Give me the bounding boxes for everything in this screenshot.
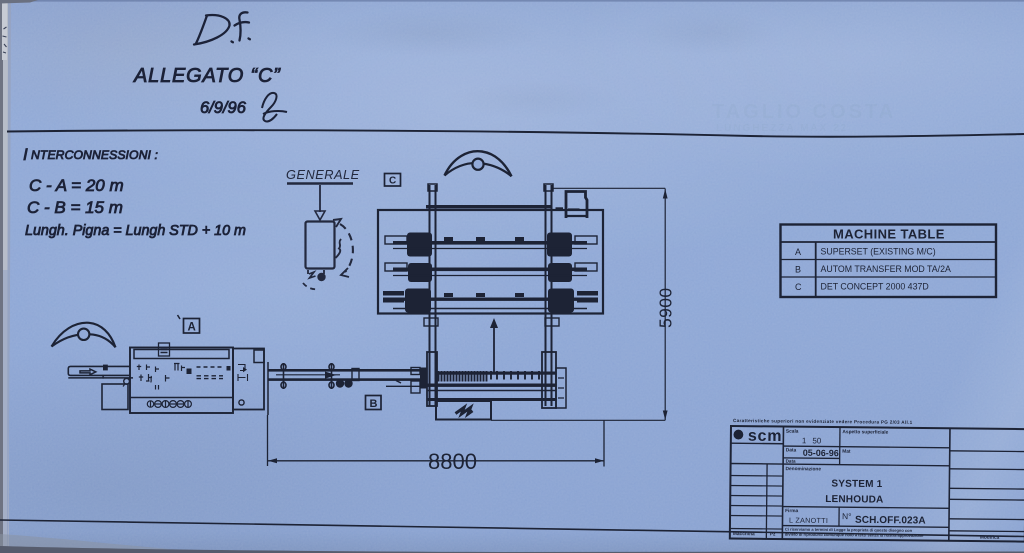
svg-text:6/9/96: 6/9/96 xyxy=(200,99,247,117)
svg-text:MACHINE TABLE: MACHINE TABLE xyxy=(833,227,945,242)
svg-text:Lungh. Pigna = Lungh STD + 10: Lungh. Pigna = Lungh STD + 10 m xyxy=(25,223,246,239)
svg-text:Scala: Scala xyxy=(786,429,799,435)
svg-text:A: A xyxy=(188,322,196,334)
svg-text:B: B xyxy=(370,398,378,410)
svg-text:A: A xyxy=(795,247,801,257)
svg-text:Macchina: Macchina xyxy=(733,531,755,537)
svg-text:C: C xyxy=(795,282,802,292)
svg-text:8800: 8800 xyxy=(428,449,477,474)
svg-text:Denominazione: Denominazione xyxy=(786,466,822,472)
svg-text:L ZANOTTI: L ZANOTTI xyxy=(789,516,828,525)
svg-text:SCH.OFF.023A: SCH.OFF.023A xyxy=(855,515,926,527)
svg-text:Data: Data xyxy=(786,447,797,453)
svg-text:N°: N° xyxy=(842,511,852,521)
svg-text:SYSTEM 1: SYSTEM 1 xyxy=(831,479,882,491)
svg-text:B: B xyxy=(795,265,801,275)
svg-text:divieto di riprodurlo comunque: divieto di riprodurlo comunque noto a te… xyxy=(785,532,924,538)
svg-text:Data: Data xyxy=(786,459,796,464)
svg-text:50: 50 xyxy=(812,436,822,445)
svg-text:C: C xyxy=(389,176,396,187)
svg-text:C - B = 15 m: C - B = 15 m xyxy=(27,198,123,217)
svg-text:Firma: Firma xyxy=(785,508,798,514)
svg-text:scm: scm xyxy=(748,428,783,445)
svg-text:ALLEGATO “C”: ALLEGATO “C” xyxy=(133,65,281,87)
svg-text:SUPERSET (EXISTING M/C): SUPERSET (EXISTING M/C) xyxy=(821,247,936,257)
svg-text:1: 1 xyxy=(802,436,807,445)
svg-text:DET CONCEPT 2000 437D: DET CONCEPT 2000 437D xyxy=(821,282,929,292)
svg-text:05-06-96: 05-06-96 xyxy=(803,448,839,458)
svg-text:I: I xyxy=(23,145,28,164)
svg-text:LENHOUDA: LENHOUDA xyxy=(825,494,883,506)
svg-text:5900: 5900 xyxy=(656,287,676,328)
svg-text:NTERCONNESSIONI :: NTERCONNESSIONI : xyxy=(31,148,158,162)
svg-text:Modifica: Modifica xyxy=(980,535,1000,541)
svg-text:Caratteristiche superiori no: Caratteristiche superiori non evidenziat… xyxy=(733,418,913,425)
svg-text:Mat: Mat xyxy=(842,449,851,455)
svg-text:Pz: Pz xyxy=(770,531,776,537)
svg-text:C - A = 20 m: C - A = 20 m xyxy=(29,176,124,195)
svg-text:Aspetto superficiale: Aspetto superficiale xyxy=(842,429,888,435)
svg-text:AUTOM TRANSFER MOD TA/2A: AUTOM TRANSFER MOD TA/2A xyxy=(821,264,951,274)
svg-text:GENERALE: GENERALE xyxy=(286,167,360,182)
